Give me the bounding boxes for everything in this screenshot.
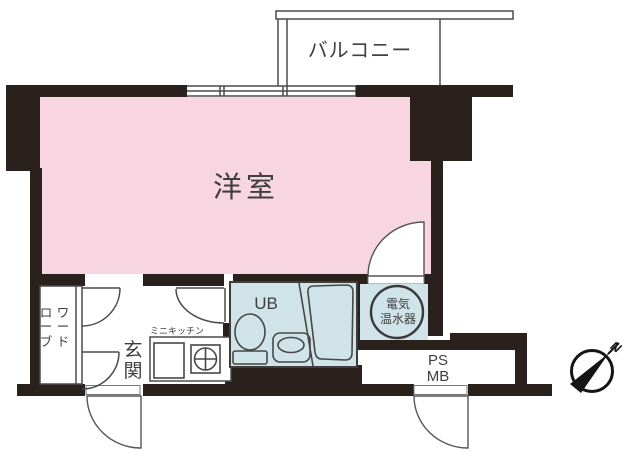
compass: N [570,338,624,393]
pipe-space-label: PS [428,352,448,369]
svg-text:ロ: ロ [40,306,53,320]
wardrobe-door-arc-bottom [82,352,119,389]
svg-text:ド: ド [57,335,70,349]
compass-north-label: N [608,338,625,356]
entrance-label-char2: 関 [123,361,142,382]
room-label: 洋室 [213,171,279,204]
unit-bath [230,282,357,367]
floor-plan-canvas: N バルコニー 洋室 UB 電気 温水器 PS MB 玄 関 ワ ー ド ロ ー… [0,0,640,468]
floor-plan: N バルコニー 洋室 UB 電気 温水器 PS MB 玄 関 ワ ー ド ロ ー… [0,0,640,468]
balcony-rail [276,11,513,19]
svg-text:ー: ー [57,320,70,334]
unit-bath-label: UB [254,294,278,313]
ub-door-arc [176,289,224,323]
balcony-label: バルコニー [308,40,413,62]
mini-kitchen [150,337,231,381]
entrance-door-swing [87,396,141,448]
svg-text:ワ: ワ [57,306,70,320]
water-heater-label-line2: 温水器 [380,312,416,326]
wardrobe-door-arc-top [82,288,120,326]
meter-box-label: MB [427,368,450,385]
balcony-window [183,86,356,96]
psmb-door-frame [414,386,467,395]
ub-door [176,288,225,323]
svg-text:ブ: ブ [40,334,53,349]
water-heater-label-line1: 電気 [386,296,410,311]
svg-text:ー: ー [40,320,53,334]
entrance-label-char1: 玄 [123,339,142,361]
psmb-door-swing [414,396,468,448]
unit-bath-area [230,282,357,367]
mini-kitchen-label: ミニキッチン [150,326,204,336]
